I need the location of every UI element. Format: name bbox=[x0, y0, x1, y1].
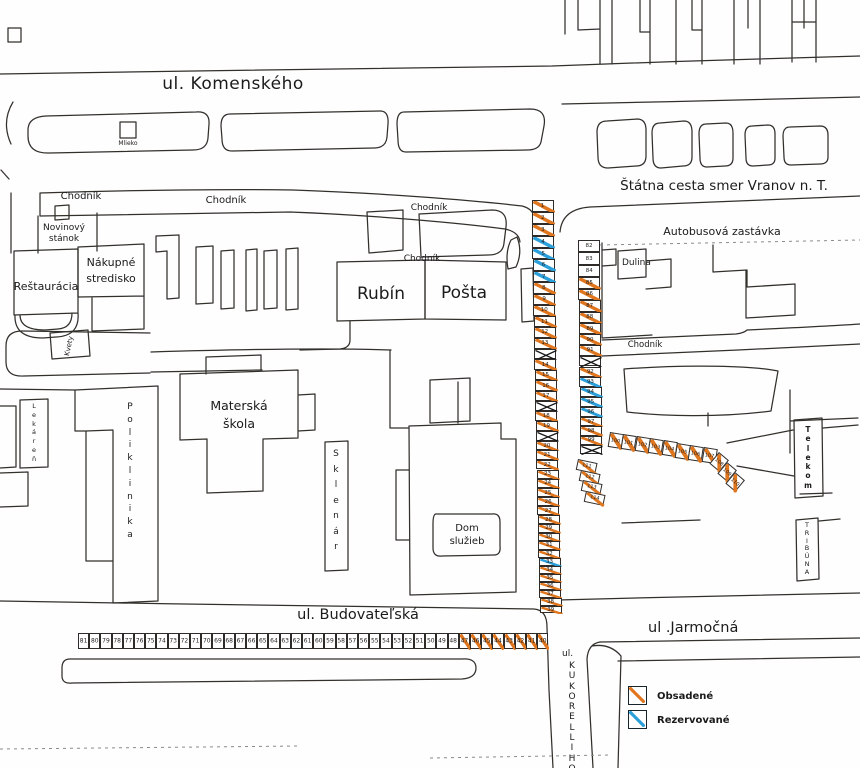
building-label-dom-sluzieb-2: služieb bbox=[450, 536, 485, 547]
street-label-statna-cesta: Štátna cesta smer Vranov n. T. bbox=[620, 178, 828, 194]
legend-occupied-swatch bbox=[628, 686, 647, 705]
stall-cell-blocked bbox=[535, 401, 557, 411]
stall-cell-5: 5 bbox=[532, 248, 554, 260]
island-5 bbox=[783, 126, 828, 165]
street-label-kukorelliho-prefix: ul. bbox=[562, 649, 573, 659]
stall-cell-77: 77 bbox=[123, 633, 134, 649]
stall-cell-29: 29 bbox=[538, 524, 560, 533]
area-label-chodnik-3: Chodník bbox=[411, 203, 448, 213]
stall-cell-24: 24 bbox=[537, 479, 559, 488]
stall-cell-32: 32 bbox=[538, 550, 560, 558]
stall-cell-18: 18 bbox=[535, 411, 557, 421]
stall-cell-39: 39 bbox=[540, 606, 562, 614]
building-slabs bbox=[156, 235, 298, 311]
street-label-jarmocna: ul .Jarmočná bbox=[648, 620, 738, 636]
stall-cell-58: 58 bbox=[336, 633, 347, 649]
stall-cell-15: 15 bbox=[535, 370, 557, 380]
stall-cell-1: 1 bbox=[532, 200, 554, 212]
road-komenskeho-bottom-edge-right bbox=[562, 97, 860, 104]
stall-cell-42: 42 bbox=[515, 633, 526, 649]
island-1 bbox=[597, 119, 646, 168]
island-3 bbox=[699, 123, 733, 167]
stall-cell-53: 53 bbox=[392, 633, 403, 649]
scan-faint-line-2 bbox=[430, 755, 610, 758]
building-label-telekom: T e l e k o m bbox=[804, 425, 812, 490]
stall-cell-79: 79 bbox=[100, 633, 111, 649]
building-label-rubin: Rubín bbox=[357, 284, 405, 304]
stall-cell-75: 75 bbox=[145, 633, 156, 649]
stall-cell-73: 73 bbox=[168, 633, 179, 649]
road-komenskeho-top-edge bbox=[0, 56, 860, 74]
stall-cell-96: 96 bbox=[580, 407, 602, 417]
road-kukorelliho-east-edge bbox=[587, 642, 621, 768]
map-outline-svg bbox=[0, 0, 860, 768]
stall-cell-11: 11 bbox=[534, 316, 556, 327]
building-label-posta: Pošta bbox=[441, 283, 487, 303]
stall-cell-31: 31 bbox=[538, 541, 560, 549]
area-label-chodnik-1: Chodník bbox=[61, 191, 102, 202]
stall-cell-80: 80 bbox=[89, 633, 100, 649]
island-2 bbox=[652, 121, 692, 168]
stall-cell-99: 99 bbox=[580, 436, 602, 445]
scan-faint-line-1 bbox=[0, 746, 300, 749]
stall-cell-30: 30 bbox=[538, 533, 560, 542]
stall-cell-63: 63 bbox=[280, 633, 291, 649]
stall-cell-86: 86 bbox=[578, 289, 600, 301]
stall-cell-16: 16 bbox=[535, 380, 557, 390]
block-curved bbox=[419, 210, 506, 257]
stall-cell-34: 34 bbox=[539, 566, 561, 574]
stall-cell-19: 19 bbox=[536, 421, 558, 431]
stall-cell-88: 88 bbox=[579, 312, 601, 323]
stall-cell-17: 17 bbox=[535, 391, 557, 401]
stall-cell-97: 97 bbox=[580, 417, 602, 427]
stall-cell-92: 92 bbox=[579, 367, 601, 377]
stall-cell-14: 14 bbox=[534, 359, 556, 370]
stall-cell-93: 93 bbox=[579, 377, 601, 387]
stall-cell-48: 48 bbox=[448, 633, 459, 649]
stall-cell-10: 10 bbox=[533, 305, 555, 316]
stall-cell-50: 50 bbox=[425, 633, 436, 649]
street-label-kukorelliho: K U K O R E L L I H O bbox=[568, 661, 575, 768]
walls-below-rubin bbox=[300, 321, 470, 428]
stall-cell-blocked bbox=[579, 356, 601, 367]
stall-cell-45: 45 bbox=[481, 633, 492, 649]
corner-triangle bbox=[507, 237, 520, 269]
stall-cell-68: 68 bbox=[224, 633, 235, 649]
building-label-mlieko: Mlieko bbox=[118, 140, 137, 147]
building-label-nakupne-1: Nákupné bbox=[87, 256, 136, 269]
stall-cell-59: 59 bbox=[324, 633, 335, 649]
stall-cell-65: 65 bbox=[257, 633, 268, 649]
stall-cell-41: 41 bbox=[526, 633, 537, 649]
stall-cell-33: 33 bbox=[539, 558, 561, 566]
stall-cell-27: 27 bbox=[537, 506, 559, 515]
stall-cell-76: 76 bbox=[134, 633, 145, 649]
stall-cell-84: 84 bbox=[578, 265, 600, 277]
stall-cell-81: 81 bbox=[78, 633, 89, 649]
street-label-budovatelska: ul. Budovateľská bbox=[297, 607, 419, 623]
stall-cell-71: 71 bbox=[190, 633, 201, 649]
left-arc bbox=[1, 102, 13, 179]
stall-cell-3: 3 bbox=[532, 224, 554, 236]
stall-cell-94: 94 bbox=[580, 387, 602, 397]
building-label-lekaren: L e k á r e ň bbox=[32, 402, 36, 464]
stall-cell-56: 56 bbox=[358, 633, 369, 649]
stall-cell-49: 49 bbox=[436, 633, 447, 649]
stall-cell-44: 44 bbox=[492, 633, 503, 649]
building-label-nakupne-2: stredisko bbox=[86, 272, 136, 285]
stall-cell-blocked bbox=[580, 445, 602, 454]
stall-cell-47: 47 bbox=[459, 633, 470, 649]
stall-cell-blocked bbox=[534, 349, 556, 360]
building-label-sklenar: S k l e n á r bbox=[333, 447, 339, 556]
stall-cell-89: 89 bbox=[579, 323, 601, 334]
stall-cell-35: 35 bbox=[539, 574, 561, 582]
stall-cell-70: 70 bbox=[201, 633, 212, 649]
parking-strip-3 bbox=[397, 109, 544, 152]
stall-cell-54: 54 bbox=[380, 633, 391, 649]
area-label-chodnik-4: Chodník bbox=[404, 254, 441, 264]
stall-cell-2: 2 bbox=[532, 212, 554, 224]
stall-cell-98: 98 bbox=[580, 426, 602, 435]
stall-cell-blocked bbox=[536, 431, 558, 441]
stall-cell-95: 95 bbox=[580, 397, 602, 407]
stall-cell-25: 25 bbox=[537, 488, 559, 497]
bracket-stop bbox=[602, 249, 616, 266]
novinovy-kiosk bbox=[55, 205, 69, 220]
stall-cell-57: 57 bbox=[347, 633, 358, 649]
stall-cell-6: 6 bbox=[533, 259, 555, 271]
connector-lines-telekom bbox=[727, 430, 794, 476]
stall-cell-69: 69 bbox=[212, 633, 223, 649]
building-label-novinovy-1: Novinový bbox=[43, 223, 85, 233]
stall-cell-74: 74 bbox=[156, 633, 167, 649]
legend-occupied-label: Obsadené bbox=[657, 691, 713, 702]
building-label-dom-sluzieb-1: Dom bbox=[455, 523, 479, 534]
legend-reserved-swatch bbox=[628, 710, 647, 729]
stall-cell-83: 83 bbox=[578, 252, 600, 264]
stall-cell-37: 37 bbox=[539, 590, 561, 598]
building-label-materska-1: Materská bbox=[210, 398, 267, 413]
stall-cell-26: 26 bbox=[537, 497, 559, 506]
building-label-poliklinika: P o l i k l i n i k a bbox=[127, 401, 133, 542]
stall-cell-87: 87 bbox=[579, 300, 601, 312]
area-label-chodnik-2: Chodník bbox=[206, 195, 247, 206]
stall-cell-43: 43 bbox=[504, 633, 515, 649]
area-label-chodnik-5: Chodník bbox=[628, 340, 663, 350]
stall-cell-66: 66 bbox=[246, 633, 257, 649]
stall-cell-72: 72 bbox=[179, 633, 190, 649]
stall-cell-82: 82 bbox=[578, 240, 600, 252]
parking-strip-2 bbox=[221, 111, 388, 151]
mlieko-kiosk bbox=[120, 122, 136, 138]
legend-reserved-label: Rezervované bbox=[657, 715, 730, 726]
chodnik-band bbox=[40, 190, 535, 242]
building-lekaren bbox=[0, 399, 48, 507]
building-label-materska-2: škola bbox=[223, 416, 255, 431]
stall-cell-64: 64 bbox=[268, 633, 279, 649]
stall-cell-51: 51 bbox=[414, 633, 425, 649]
building-dom-sluzieb bbox=[396, 423, 516, 595]
building-poliklinika bbox=[0, 386, 158, 603]
stall-cell-9: 9 bbox=[533, 294, 555, 305]
top-left-square bbox=[8, 28, 21, 42]
building-label-novinovy-2: stánok bbox=[49, 234, 79, 244]
stall-cell-90: 90 bbox=[579, 334, 601, 345]
building-label-tribuna: T R I B Ú N A bbox=[805, 522, 810, 577]
stall-cell-4: 4 bbox=[532, 236, 554, 248]
stall-cell-78: 78 bbox=[112, 633, 123, 649]
stall-cell-7: 7 bbox=[533, 271, 555, 282]
lane-lines bbox=[151, 349, 391, 372]
stall-cell-85: 85 bbox=[578, 277, 600, 289]
stall-cell-8: 8 bbox=[533, 282, 555, 293]
stall-cell-21: 21 bbox=[536, 450, 558, 460]
stall-cell-12: 12 bbox=[534, 327, 556, 338]
tribuna-box bbox=[796, 518, 840, 581]
stall-cell-61: 61 bbox=[302, 633, 313, 649]
building-restauracia bbox=[14, 249, 78, 338]
stall-cell-36: 36 bbox=[539, 582, 561, 590]
stall-cell-40: 40 bbox=[537, 633, 548, 649]
stall-cell-13: 13 bbox=[534, 338, 556, 349]
big-building-right bbox=[624, 366, 778, 426]
bottom-island-strip bbox=[62, 659, 476, 683]
stall-cell-28: 28 bbox=[538, 515, 560, 524]
stall-cell-91: 91 bbox=[579, 345, 601, 356]
stall-cell-60: 60 bbox=[313, 633, 324, 649]
stall-cell-46: 46 bbox=[470, 633, 481, 649]
top-right-buildings bbox=[565, 0, 816, 64]
stall-cell-20: 20 bbox=[536, 441, 558, 451]
area-label-autobusova-zastavka: Autobusová zastávka bbox=[663, 225, 780, 238]
stall-cell-67: 67 bbox=[235, 633, 246, 649]
market-map-canvas: 1234567891011121314151617181920212223242… bbox=[0, 0, 860, 768]
stall-cell-55: 55 bbox=[369, 633, 380, 649]
platform-dashed-line bbox=[600, 240, 860, 245]
stall-cell-23: 23 bbox=[537, 470, 559, 479]
stall-cell-22: 22 bbox=[536, 460, 558, 469]
stall-cell-62: 62 bbox=[291, 633, 302, 649]
stall-cell-52: 52 bbox=[403, 633, 414, 649]
area-label-dulina: Dulina bbox=[622, 258, 651, 268]
building-label-restauracia: Reštaurácia bbox=[14, 280, 79, 293]
road-budovatelska-top-edge bbox=[0, 601, 553, 768]
island-4 bbox=[745, 125, 775, 166]
stall-cell-38: 38 bbox=[540, 598, 562, 606]
enclosure-kvety bbox=[6, 331, 150, 376]
street-label-komenskeho: ul. Komenského bbox=[162, 74, 304, 94]
